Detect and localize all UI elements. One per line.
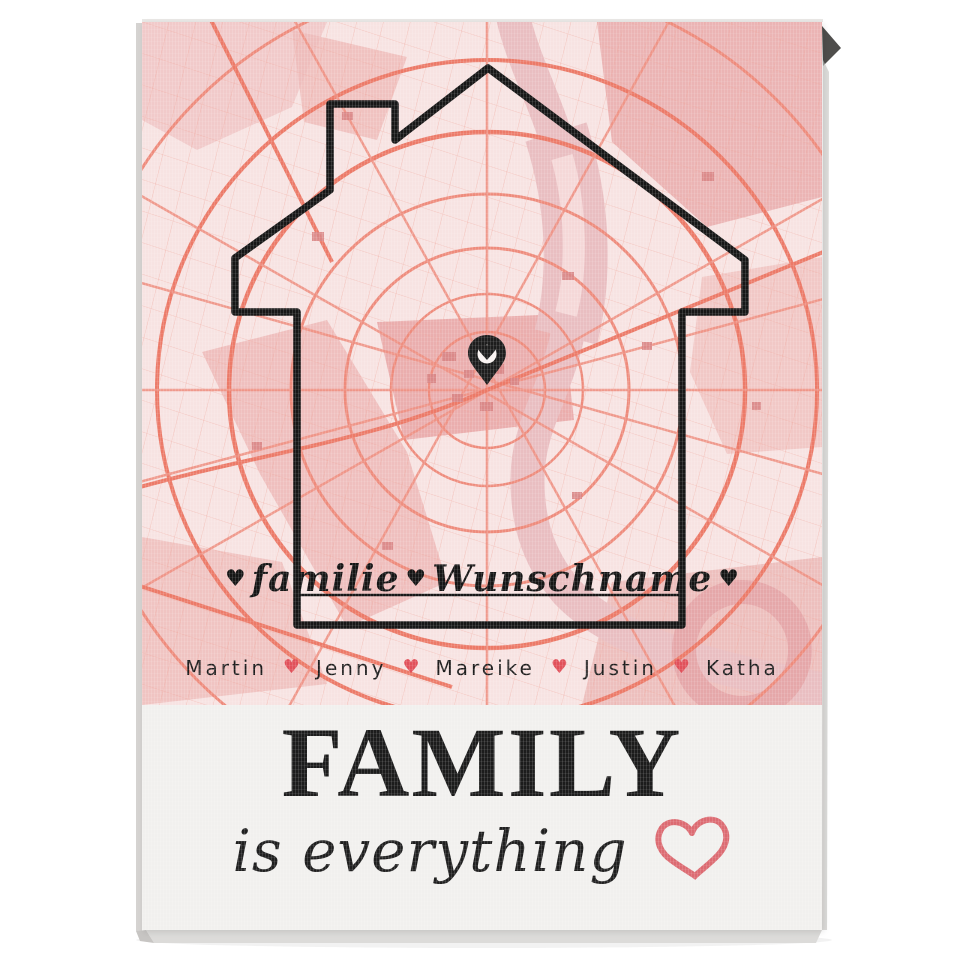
product-photo: ♥familie♥Wunschname♥ Martin ♥ Jenny ♥ Ma… [0,0,960,960]
heart-icon: ♥ [283,656,300,678]
names-row: Martin ♥ Jenny ♥ Mareike ♥ Justin ♥ Kath… [142,652,822,684]
family-member-name: Justin [584,656,657,680]
heart-icon: ♥ [400,565,433,592]
city-map-art [142,22,822,705]
heart-icon: ♥ [673,656,690,678]
family-member-name: Martin [185,656,267,680]
map-family-label: ♥familie♥Wunschname♥ [142,558,822,600]
family-member-name: Mareike [435,656,534,680]
canvas-corner-fold [822,26,841,66]
family-member-name: Katha [706,656,779,680]
heart-icon: ♥ [712,565,745,592]
heart-icon: ♥ [402,656,419,678]
heart-icon: ♥ [551,656,568,678]
custom-name: Wunschname [432,558,712,600]
heart-icon: ♥ [219,565,252,592]
canvas-bottom-edge [146,930,822,943]
family-word: familie [252,558,400,600]
heart-outline-icon [651,810,734,885]
canvas-print: ♥familie♥Wunschname♥ Martin ♥ Jenny ♥ Ma… [142,22,822,930]
subtitle-script: is everything [232,817,627,885]
family-member-name: Jenny [316,656,386,680]
subtitle-row: is everything [142,817,822,885]
family-title: FAMILY [142,715,822,810]
caption-section: FAMILY is everything [142,705,822,930]
canvas-right-edge [822,60,829,930]
